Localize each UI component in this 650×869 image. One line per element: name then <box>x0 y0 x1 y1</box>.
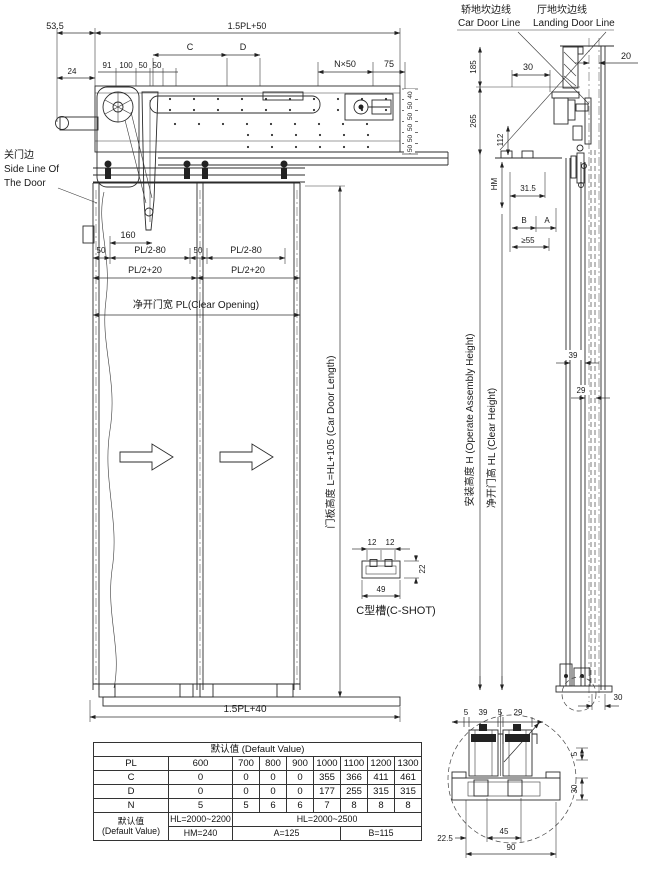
dim-160: 160 <box>120 230 135 240</box>
dim-100: 100 <box>119 61 133 70</box>
elevator-door-drawing: 53.5 1.5PL+50 C D N×50 75 24 91 100 50 5… <box>0 0 650 869</box>
dim-112: 112 <box>496 133 505 146</box>
b-value: B=115 <box>341 827 422 841</box>
dim-91: 91 <box>103 61 112 70</box>
dim-22: 22 <box>418 564 427 573</box>
table-title: 默认值 (Default Value) <box>94 743 422 757</box>
hl-range-1: HL=2000~2200 <box>169 813 233 827</box>
dim-1-5pl-40: 1.5PL+40 <box>223 704 267 715</box>
det-dim-45: 45 <box>500 827 509 836</box>
table-row-pl: PL 600 700 800 900 1000 1100 1200 1300 <box>94 757 422 771</box>
dim-1-5pl-50: 1.5PL+50 <box>228 21 267 31</box>
side-line-zh: 关门边 <box>4 148 34 161</box>
dim-29: 29 <box>577 386 586 395</box>
stack-50-1: 50 <box>407 102 414 110</box>
car-door-line-zh: 轿地坎边线 <box>461 3 511 16</box>
row-label-pl: PL <box>94 757 169 771</box>
dim-53-5: 53.5 <box>46 21 64 31</box>
open-direction-arrow-left <box>120 444 173 470</box>
dim-39: 39 <box>569 351 578 360</box>
defaults-table: 默认值 (Default Value) PL 600 700 800 900 1… <box>93 742 422 841</box>
a-value: A=125 <box>233 827 341 841</box>
dim-b: B <box>521 216 526 225</box>
det-dim-22-5: 22.5 <box>437 834 453 843</box>
stack-40: 40 <box>407 91 414 99</box>
side-line-en1: Side Line Of <box>4 164 59 175</box>
dim-31-5: 31.5 <box>520 184 536 193</box>
hl-range-2: HL=2000~2500 <box>233 813 422 827</box>
det-dim-39: 39 <box>479 708 488 717</box>
car-door-line-en: Car Door Line <box>458 18 521 29</box>
dim-30: 30 <box>523 62 533 72</box>
table-footer-row-1: 默认值 (Default Value) HL=2000~2200 HL=2000… <box>94 813 422 827</box>
dim-d: D <box>240 42 247 52</box>
dim-50b: 50 <box>153 61 162 70</box>
table-row-n: N 5 5 6 6 7 8 8 8 <box>94 799 422 813</box>
open-direction-arrow-right <box>220 444 273 470</box>
row-label-d: D <box>94 785 169 799</box>
door-panels <box>93 183 300 690</box>
dim-sill-30: 30 <box>614 693 623 702</box>
hm-value: HM=240 <box>169 827 233 841</box>
dim-49: 49 <box>377 585 386 594</box>
det-dim-29: 29 <box>514 708 523 717</box>
stack-50-4: 50 <box>407 135 414 143</box>
dim-12a: 12 <box>368 538 377 547</box>
side-line-label: 关门边 Side Line Of The Door <box>4 148 97 203</box>
dim-24: 24 <box>68 67 77 76</box>
landing-door-line-zh: 厅地坎边线 <box>537 3 587 16</box>
dim-20: 20 <box>621 51 631 61</box>
det-dim-5a: 5 <box>464 708 469 717</box>
c-channel-detail: 12 12 22 49 C型槽(C-SHOT) <box>352 538 436 617</box>
table-title-row: 默认值 (Default Value) <box>94 743 422 757</box>
det-dim-30r: 30 <box>570 784 579 793</box>
clear-height-label: 净开门高 HL (Clear Height) <box>485 388 498 508</box>
dim-75: 75 <box>384 59 394 69</box>
dim-50-right: 50 <box>194 246 203 255</box>
dim-265: 265 <box>469 114 478 128</box>
dim-12b: 12 <box>386 538 395 547</box>
hole-pitch-stack: 40 50 50 50 50 50 <box>402 89 418 154</box>
dim-185: 185 <box>469 60 478 74</box>
dim-50a: 50 <box>139 61 148 70</box>
stack-50-5: 50 <box>407 145 414 153</box>
dim-hm: HM <box>490 177 499 190</box>
stack-50-3: 50 <box>407 124 414 132</box>
dim-pl2-80-a: PL/2-80 <box>134 245 166 255</box>
dim-pl2-80-b: PL/2-80 <box>230 245 262 255</box>
dim-pl2-20-a: PL/2+20 <box>128 265 162 275</box>
side-line-en2: The Door <box>4 178 46 189</box>
table-row-c: C 0 0 0 0 355 366 411 461 <box>94 771 422 785</box>
footer-label: 默认值 (Default Value) <box>94 813 169 841</box>
clear-opening-label: 净开门宽 PL(Clear Opening) <box>133 298 259 311</box>
det-dim-5r: 5 <box>570 751 579 756</box>
row-label-c: C <box>94 771 169 785</box>
stack-50-2: 50 <box>407 113 414 121</box>
row-label-n: N <box>94 799 169 813</box>
dim-pl2-20-b: PL/2+20 <box>231 265 265 275</box>
dim-c: C <box>187 42 194 52</box>
assembly-height-label: 安装高度 H (Operate Assembly Height) <box>463 334 476 507</box>
det-dim-90: 90 <box>507 843 516 852</box>
dim-50-left: 50 <box>97 246 106 255</box>
dim-a: A <box>544 216 550 225</box>
c-channel-label: C型槽(C-SHOT) <box>356 603 435 617</box>
table-row-d: D 0 0 0 0 177 255 315 315 <box>94 785 422 799</box>
landing-door-line-en: Landing Door Line <box>533 18 615 29</box>
dim-ge55: ≥55 <box>521 236 535 245</box>
sill-detail: 5 39 5 29 5 30 <box>437 708 588 858</box>
dim-nx50: N×50 <box>334 59 356 69</box>
drawing-canvas: 53.5 1.5PL+50 C D N×50 75 24 91 100 50 5… <box>0 0 650 869</box>
section-view: 轿地坎边线 Car Door Line 厅地坎边线 Landing Door L… <box>457 3 638 762</box>
door-length-label: 门板高度 L=HL+105 (Car Door Length) <box>324 356 337 529</box>
